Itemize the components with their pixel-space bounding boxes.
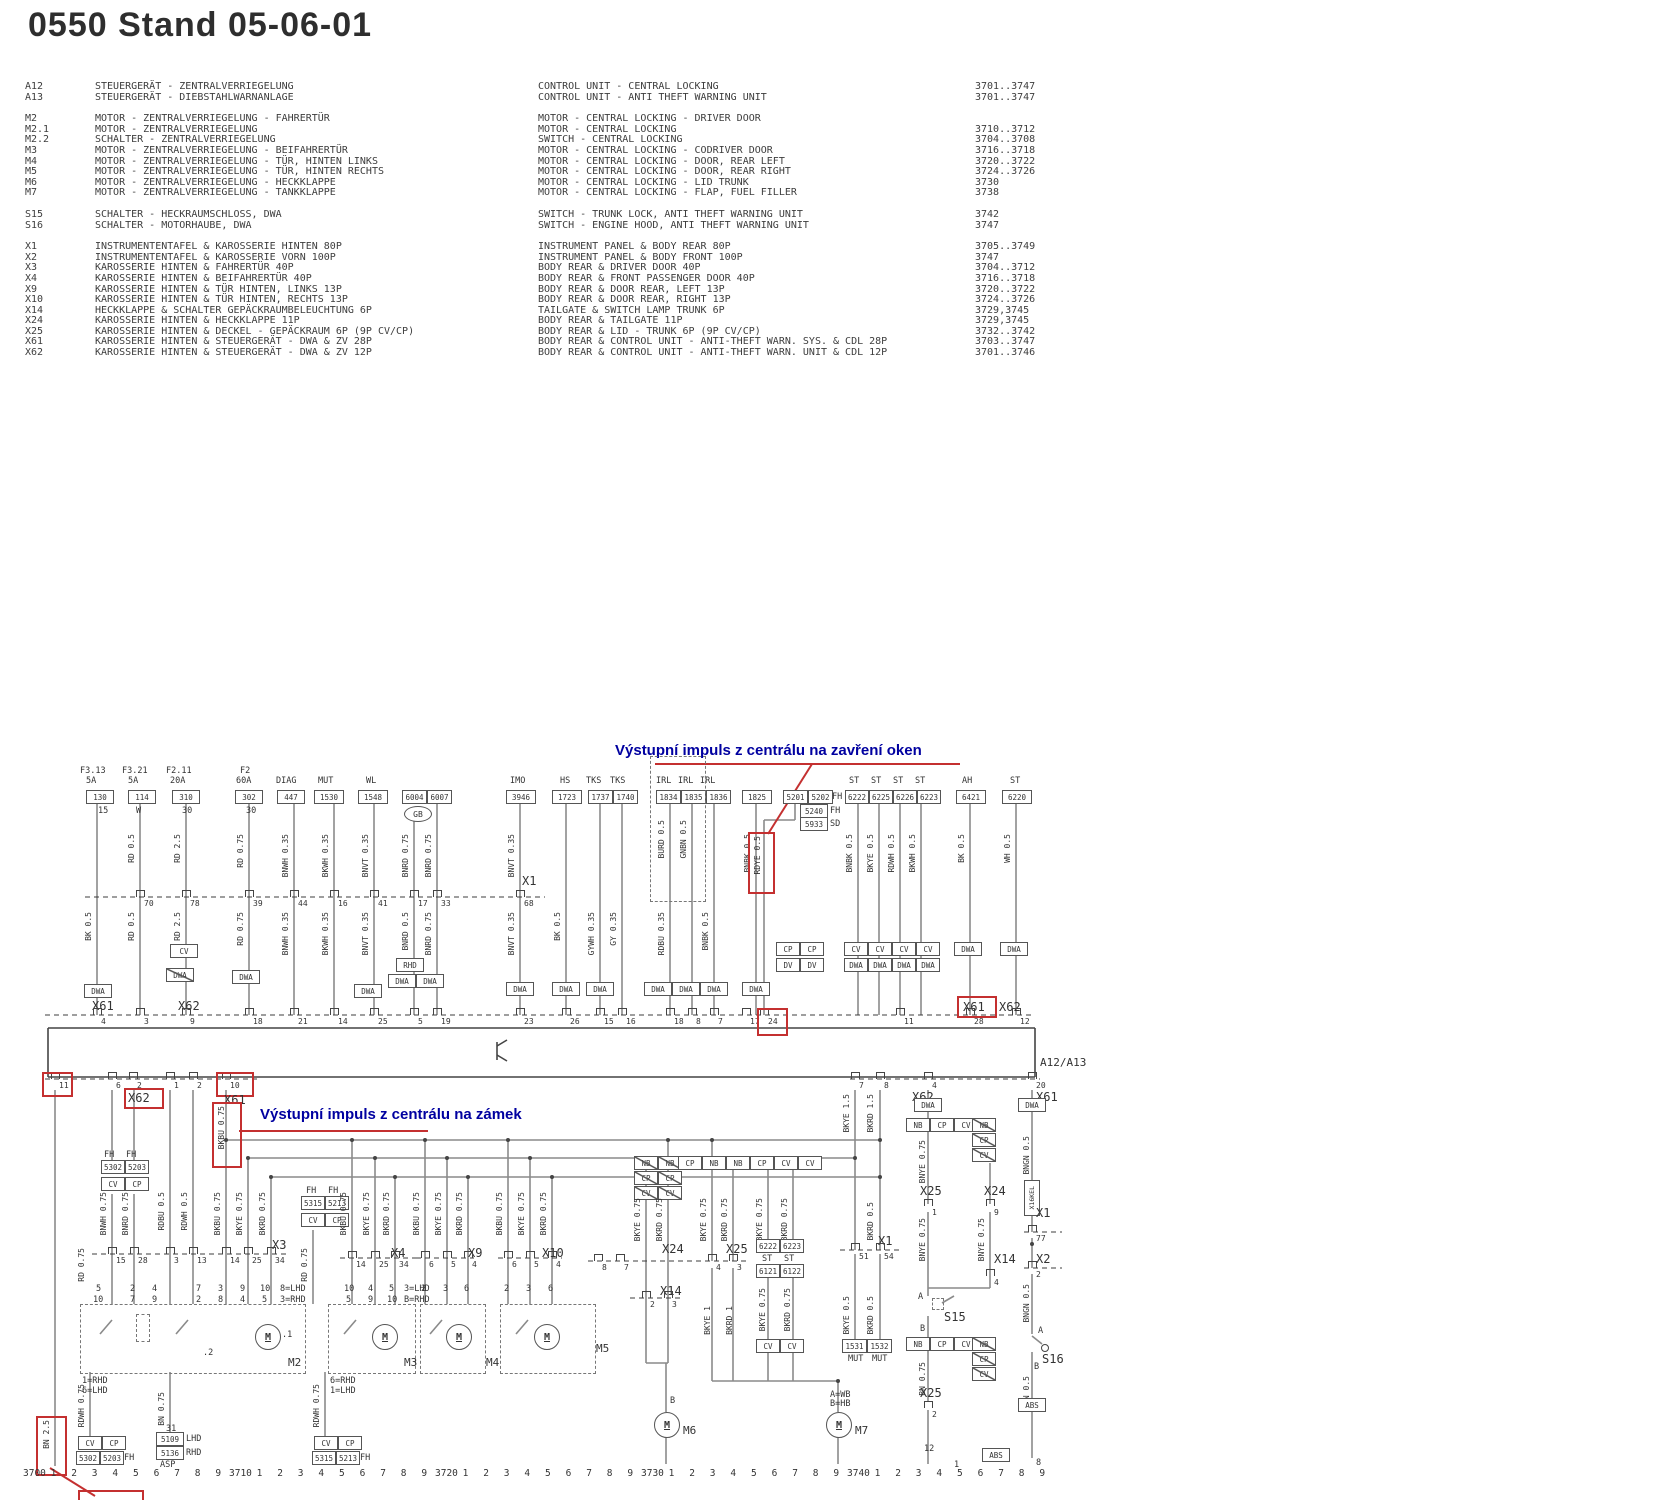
scale-number: 3 <box>916 1468 922 1479</box>
code-cell: DWA <box>416 974 444 988</box>
connector-pin <box>464 1251 473 1258</box>
diagram-text: FH <box>126 1150 136 1160</box>
scale-number: 3740 <box>847 1468 870 1479</box>
code-cell: CV <box>170 944 198 958</box>
connector-pin <box>182 890 191 897</box>
connector-pin: 6 <box>429 1260 434 1269</box>
code-cell: CV <box>892 942 916 956</box>
connector-pin: 4 <box>932 1081 937 1090</box>
connector-pin: 2 <box>650 1300 655 1309</box>
connector-pin <box>1028 1261 1037 1268</box>
junction-dot <box>423 1138 427 1142</box>
annotation-note-2: Výstupní impuls z centrálu na zámek <box>260 1106 522 1123</box>
motor-m6: M <box>654 1412 680 1438</box>
connector-pin: 34 <box>275 1256 285 1265</box>
wire-gauge-label: BKRD 0.75 <box>539 1192 548 1235</box>
scale-number: 3 <box>298 1468 304 1479</box>
wire-gauge-label: BKWH 0.35 <box>321 834 330 877</box>
diagram-text: A <box>1038 1326 1043 1336</box>
connector-pin: 2 <box>932 1410 937 1419</box>
wire-gauge-label: BKYE 1 <box>703 1306 712 1335</box>
code-cell: ABS <box>982 1448 1010 1462</box>
junction-dot <box>836 1379 840 1383</box>
connector-pin <box>986 1199 995 1206</box>
connector-pin: 8 <box>696 1017 701 1026</box>
code-box: NB <box>972 1337 996 1351</box>
connector-pin: 3 <box>737 1263 742 1272</box>
connector-pin <box>688 1008 697 1015</box>
scale-number: 1 <box>257 1468 263 1479</box>
code-cell: NB <box>906 1337 930 1351</box>
code-box: DWADWA <box>388 974 444 988</box>
terminal-box: 302 <box>235 790 263 804</box>
terminal-box: 1723 <box>552 790 582 804</box>
diagram-text: TKS <box>610 776 625 786</box>
wire-gauge-label: BNRD 0.75 <box>121 1192 130 1235</box>
connector-label-x14: X14 <box>994 1252 1016 1266</box>
wire-gauge-label: BNVT 0.35 <box>507 834 516 877</box>
code-box: NBCPCV <box>906 1118 978 1132</box>
crossed-out-mark <box>973 1368 995 1380</box>
code-box: CP <box>972 1352 996 1366</box>
code-cell: DWA <box>954 942 982 956</box>
diagram-text: .2 <box>203 1348 213 1358</box>
wire-gauge-label: BKYE 0.75 <box>699 1198 708 1241</box>
diagram-text: MUT <box>872 1354 887 1364</box>
connector-pin: 20 <box>1036 1081 1046 1090</box>
code-box: DWA <box>232 970 260 984</box>
junction-dot <box>506 1138 510 1142</box>
scale-number: 6 <box>772 1468 778 1479</box>
scale-number: 9 <box>833 1468 839 1479</box>
scale-number: 8 <box>1019 1468 1025 1479</box>
wire-gauge-label: GY 0.35 <box>609 912 618 946</box>
junction-dot <box>269 1175 273 1179</box>
code-cell: CP <box>658 1171 682 1185</box>
wire-gauge-label: RDWH 0.5 <box>180 1192 189 1231</box>
diagram-text: 5 <box>96 1284 101 1294</box>
wire-gauge-label: GYWH 0.35 <box>587 912 596 955</box>
code-cell: CP <box>930 1118 954 1132</box>
code-box: DWA <box>1000 942 1028 956</box>
connector-pin <box>410 890 419 897</box>
highlight-x62 <box>124 1088 164 1109</box>
code-box: NB <box>972 1118 996 1132</box>
connector-pin: 18 <box>674 1017 684 1026</box>
code-cell: DWA <box>844 958 868 972</box>
connector-pin <box>876 1072 885 1079</box>
connector-pin <box>516 1008 525 1015</box>
wire-gauge-label: BNBK 0.5 <box>701 912 710 951</box>
code-cell: CP <box>800 942 824 956</box>
code-cell: 5202 <box>808 790 833 804</box>
junction-dot <box>878 1138 882 1142</box>
motor-label-m2: M2 <box>288 1356 301 1369</box>
diagram-text: 3 <box>218 1284 223 1294</box>
scale-number: 1 <box>669 1468 675 1479</box>
code-box: RHD <box>396 958 424 972</box>
connector-label-x2: X2 <box>1036 1252 1050 1266</box>
connector-pin: 34 <box>399 1260 409 1269</box>
junction-dot <box>246 1156 250 1160</box>
connector-pin <box>166 1072 175 1079</box>
dashed-outline <box>136 1314 150 1342</box>
code-cell: DWA <box>388 974 416 988</box>
wire-gauge-label: BNYE 0.75 <box>918 1140 927 1183</box>
diagram-text: 12 <box>924 1444 934 1454</box>
code-cell: 6004 <box>402 790 427 804</box>
dashed-outline <box>932 1298 944 1310</box>
wire-gauge-label: BKYE 1.5 <box>842 1094 851 1133</box>
connector-pin <box>664 1291 673 1298</box>
diagram-text: HS <box>560 776 570 786</box>
diagram-text: 6=RHD <box>330 1376 356 1386</box>
code-cell: 6421 <box>956 790 986 804</box>
connector-pin: 16 <box>338 899 348 908</box>
scale-number: 7 <box>174 1468 180 1479</box>
wire-gauge-label: BK 0.5 <box>553 912 562 941</box>
wire-gauge-label: BKRD 0.5 <box>866 1202 875 1241</box>
connector-pin: 19 <box>441 1017 451 1026</box>
motor-label-m3: M3 <box>404 1356 417 1369</box>
terminal-box: 5933 <box>800 817 828 831</box>
connector-pin <box>391 1251 400 1258</box>
code-cell: NB <box>906 1118 930 1132</box>
code-cell: CV <box>78 1436 102 1450</box>
wire-line <box>497 1055 507 1061</box>
connector-pin <box>136 890 145 897</box>
code-cell: 6220 <box>1002 790 1032 804</box>
wire-gauge-label: RD 0.75 <box>236 912 245 946</box>
wiring-diagram-page: 0550 Stand 05-06-01 A12 STEUERGERÄT - ZE… <box>0 0 1670 1500</box>
connector-pin: 17 <box>418 899 428 908</box>
connector-pin: 4 <box>994 1278 999 1287</box>
diagram-text: WL <box>366 776 376 786</box>
scale-number: 8 <box>813 1468 819 1479</box>
code-box: 53025203 <box>76 1451 124 1465</box>
connector-pin <box>526 1251 535 1258</box>
terminal-box: 130 <box>86 790 114 804</box>
diagram-text: 7 <box>196 1284 201 1294</box>
connector-pin: 28 <box>974 1017 984 1026</box>
code-cell: CV <box>301 1213 325 1227</box>
code-cell: NB <box>634 1156 658 1170</box>
code-cell: CV <box>972 1367 996 1381</box>
connector-pin: 4 <box>556 1260 561 1269</box>
code-box: CPNBNBCPCVCV <box>678 1156 822 1170</box>
wire-gauge-label: RDWH 0.5 <box>887 834 896 873</box>
connector-pin: 33 <box>441 899 451 908</box>
code-box: NBNB <box>634 1156 682 1170</box>
connector-pin: 5 <box>418 1017 423 1026</box>
wire-gauge-label: BKBU 0.75 <box>412 1192 421 1235</box>
code-box: DWA <box>954 942 982 956</box>
diagram-text: 5 <box>389 1284 394 1294</box>
connector-pin: 14 <box>338 1017 348 1026</box>
diagram-text: FH <box>124 1453 134 1463</box>
wire-gauge-label: BURD 0.5 <box>657 820 666 859</box>
code-cell: CV <box>756 1339 780 1353</box>
code-cell: NB <box>972 1118 996 1132</box>
diagram-text: TKS <box>586 776 601 786</box>
code-box: 53025203 <box>101 1160 149 1174</box>
connector-pin <box>136 1008 145 1015</box>
scale-number: 7 <box>998 1468 1004 1479</box>
connector-pin: 44 <box>298 899 308 908</box>
wire-gauge-label: BKRD 0.75 <box>382 1192 391 1235</box>
wire-gauge-label: BKYE 0.75 <box>755 1198 764 1241</box>
connector-pin: 68 <box>524 899 534 908</box>
code-box: 5109 <box>156 1432 184 1446</box>
connector-pin <box>708 1254 717 1261</box>
code-cell: DWA <box>892 958 916 972</box>
code-box: NBCPCV <box>906 1337 978 1351</box>
diagram-text: ST <box>915 776 925 786</box>
connector-pin: 6 <box>116 1081 121 1090</box>
connector-pin: 5 <box>451 1260 456 1269</box>
code-box: CV <box>170 944 198 958</box>
connector-pin: 54 <box>884 1252 894 1261</box>
diagram-text: B <box>670 1396 675 1406</box>
connector-pin <box>924 1072 933 1079</box>
connector-label-x1: X1 <box>1036 1206 1050 1220</box>
code-box: 15311532 <box>842 1339 892 1353</box>
code-cell: CV <box>101 1177 125 1191</box>
connector-pin <box>330 1008 339 1015</box>
code-box: CP <box>972 1133 996 1147</box>
connector-pin <box>924 1401 933 1408</box>
code-cell: CV <box>798 1156 822 1170</box>
scale-number: 5 <box>957 1468 963 1479</box>
connector-pin: 4 <box>472 1260 477 1269</box>
wire-gauge-label: RD 0.75 <box>300 1248 309 1282</box>
connector-pin <box>370 890 379 897</box>
diagram-text: FH <box>306 1186 316 1196</box>
diagram-text: 2 <box>130 1284 135 1294</box>
connector-pin <box>548 1251 557 1258</box>
code-cell: CP <box>338 1436 362 1450</box>
connector-pin <box>267 1247 276 1254</box>
connector-pin: 8 <box>884 1081 889 1090</box>
scale-number: 3710 <box>229 1468 252 1479</box>
wire-gauge-label: BKYE 0.75 <box>434 1192 443 1235</box>
connector-pin <box>290 1008 299 1015</box>
code-box: CPCP <box>776 942 824 956</box>
diagram-text: B=HB <box>830 1399 850 1409</box>
code-box: CVCV <box>756 1339 804 1353</box>
scale-number: 2 <box>71 1468 77 1479</box>
diagram-text: DIAG <box>276 776 296 786</box>
connector-pin: 41 <box>378 899 388 908</box>
code-cell: DWA <box>1000 942 1028 956</box>
code-cell: DWA <box>1018 1098 1046 1112</box>
code-cell: 130 <box>86 790 114 804</box>
wire-gauge-label: BKYE 0.75 <box>235 1192 244 1235</box>
scale-number: 4 <box>112 1468 118 1479</box>
scale-number: 1 <box>51 1468 57 1479</box>
diagram-text: 3 <box>443 1284 448 1294</box>
connector-pin: 5 <box>534 1260 539 1269</box>
code-box: DWA <box>586 982 614 996</box>
crossed-out-mark <box>973 1338 995 1350</box>
connector-pin <box>516 890 525 897</box>
diagram-text: 8=LHD <box>280 1284 306 1294</box>
code-cell: DWA <box>672 982 700 996</box>
diagram-text: ST <box>849 776 859 786</box>
code-cell: 1737 <box>588 790 613 804</box>
connector-pin <box>108 1072 117 1079</box>
code-cell: CP <box>972 1352 996 1366</box>
connector-pin <box>851 1072 860 1079</box>
code-cell: 5933 <box>800 817 828 831</box>
code-cell: NB <box>726 1156 750 1170</box>
fuse-label: F3.21 <box>122 766 148 776</box>
connector-pin: 25 <box>378 1017 388 1026</box>
connector-pin <box>290 890 299 897</box>
highlight-pin-11 <box>42 1072 73 1097</box>
connector-pin <box>618 1008 627 1015</box>
terminal-box: 60046007 <box>402 790 452 804</box>
connector-pin: 3 <box>144 1017 149 1026</box>
terminal-box: 1530 <box>314 790 344 804</box>
connector-pin <box>562 1008 571 1015</box>
wire-gauge-label: BNRD 0.75 <box>424 834 433 877</box>
code-cell: CP <box>678 1156 702 1170</box>
code-cell: DWA <box>868 958 892 972</box>
wire-gauge-label: BKRD 0.75 <box>720 1198 729 1241</box>
connector-pin <box>189 1072 198 1079</box>
connector-pin: 16 <box>626 1017 636 1026</box>
diagram-text: ST <box>871 776 881 786</box>
control-unit-label: A12/A13 <box>1040 1056 1086 1069</box>
code-cell: RHD <box>396 958 424 972</box>
connector-pin <box>348 1251 357 1258</box>
switch-label-s15: S15 <box>944 1310 966 1324</box>
wire-gauge-label: BNVT 0.35 <box>361 912 370 955</box>
connector-pin <box>370 1008 379 1015</box>
connector-pin <box>421 1251 430 1258</box>
scale-number: 1 <box>875 1468 881 1479</box>
wire-gauge-label: BK 0.5 <box>957 834 966 863</box>
connector-pin: 11 <box>904 1017 914 1026</box>
connector-label-x24: X24 <box>984 1184 1006 1198</box>
code-cell: 114 <box>128 790 156 804</box>
junction-dot <box>710 1138 714 1142</box>
code-cell: CP <box>776 942 800 956</box>
wire-gauge-label: BNWH 0.35 <box>281 912 290 955</box>
connector-pin <box>1028 1072 1037 1079</box>
connector-pin: 39 <box>253 899 263 908</box>
connector-label-x25: X25 <box>920 1386 942 1400</box>
terminal-box: 1825 <box>742 790 772 804</box>
wire-gauge-label: RD 0.75 <box>77 1248 86 1282</box>
diagram-text: 30 <box>182 806 192 816</box>
connector-pin: 2 <box>197 1081 202 1090</box>
diagram-text: A <box>918 1292 923 1302</box>
code-cell: 6223 <box>780 1239 804 1253</box>
wire-gauge-label: BNYE 0.75 <box>977 1218 986 1261</box>
scale-number: 1 <box>463 1468 469 1479</box>
connector-pin <box>433 890 442 897</box>
motor-label-m6: M6 <box>683 1424 696 1437</box>
connector-pin <box>410 1008 419 1015</box>
connector-pin <box>616 1254 625 1261</box>
diagram-text: FH <box>360 1453 370 1463</box>
junction-dot <box>445 1156 449 1160</box>
terminal-box: 6421 <box>956 790 986 804</box>
junction-dot <box>373 1156 377 1160</box>
connector-pin: 25 <box>379 1260 389 1269</box>
code-cell: 6122 <box>780 1264 804 1278</box>
terminal-box: 5240 <box>800 804 828 818</box>
terminal-box: 447 <box>277 790 305 804</box>
code-cell: DWA <box>586 982 614 996</box>
connector-pin <box>729 1254 738 1261</box>
junction-dot <box>466 1175 470 1179</box>
connector-pin <box>851 1243 860 1250</box>
code-box: DWA <box>354 984 382 998</box>
code-box: ABS <box>982 1448 1010 1462</box>
wire-gauge-label: BNRD 0.5 <box>401 912 410 951</box>
code-cell: CV <box>844 942 868 956</box>
code-cell: 5315 <box>312 1451 336 1465</box>
connector-pin <box>166 1247 175 1254</box>
wire-gauge-label: BNYE 0.75 <box>918 1218 927 1261</box>
connector-pin <box>222 1247 231 1254</box>
scale-number: 9 <box>215 1468 221 1479</box>
junction-dot <box>393 1175 397 1179</box>
code-box: DVDV <box>776 958 824 972</box>
schematic-area: Výstupní impuls z centrálu na zavření ok… <box>0 0 1670 1500</box>
code-cell: 310 <box>172 790 200 804</box>
code-box: CV <box>972 1367 996 1381</box>
motor-label-m7: M7 <box>855 1424 868 1437</box>
connector-pin: 28 <box>138 1256 148 1265</box>
connector-pin <box>742 1008 751 1015</box>
connector-pin <box>986 1269 995 1276</box>
diagram-text: FH <box>104 1150 114 1160</box>
diagram-text: AH <box>962 776 972 786</box>
motor-m3: M <box>372 1324 398 1350</box>
diagram-text: 9 <box>240 1284 245 1294</box>
wire-gauge-label: RDBU 0.35 <box>657 912 666 955</box>
code-cell: DV <box>800 958 824 972</box>
code-cell: 5213 <box>336 1451 360 1465</box>
wire-gauge-label: BNWH 0.35 <box>281 834 290 877</box>
wire-gauge-label: BKYE 0.5 <box>842 1296 851 1335</box>
connector-pin: 9 <box>994 1208 999 1217</box>
fuse-label: F3.13 <box>80 766 106 776</box>
motor-m5: M <box>534 1324 560 1350</box>
code-cell: NB <box>972 1337 996 1351</box>
code-cell: 1825 <box>742 790 772 804</box>
wire-gauge-label: BKYE 0.75 <box>362 1192 371 1235</box>
code-cell: 447 <box>277 790 305 804</box>
scale-number: 3720 <box>435 1468 458 1479</box>
code-cell: DWA <box>84 984 112 998</box>
code-cell: 5302 <box>101 1160 125 1174</box>
scale-number: 6 <box>360 1468 366 1479</box>
code-box: DWADWADWA <box>644 982 728 996</box>
junction-dot <box>224 1138 228 1142</box>
connector-pin: 23 <box>524 1017 534 1026</box>
diagram-text: 10 <box>260 1284 270 1294</box>
crossed-out-mark <box>973 1353 995 1365</box>
code-box: CV <box>972 1148 996 1162</box>
wire-gauge-label: BKRD 0.75 <box>455 1192 464 1235</box>
connector-pin <box>433 1008 442 1015</box>
scale-number: 5 <box>133 1468 139 1479</box>
